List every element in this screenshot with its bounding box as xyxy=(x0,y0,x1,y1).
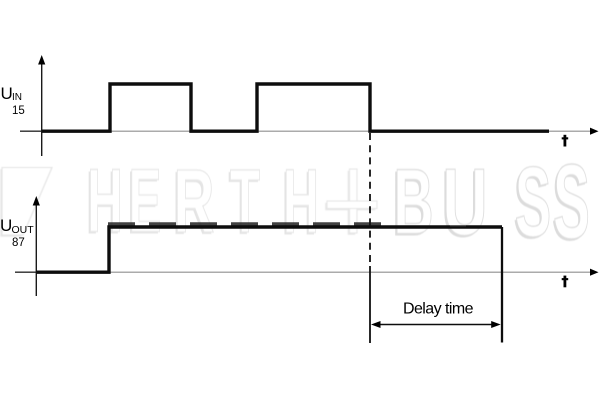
svg-text:T: T xyxy=(230,151,260,251)
svg-text:87: 87 xyxy=(12,237,25,249)
svg-text:S: S xyxy=(553,143,590,261)
svg-text:U: U xyxy=(1,84,13,103)
svg-text:OUT: OUT xyxy=(12,224,35,236)
svg-text:H: H xyxy=(87,151,123,251)
svg-text:IN: IN xyxy=(12,92,22,103)
svg-text:H: H xyxy=(283,151,319,253)
svg-text:B: B xyxy=(393,151,433,254)
svg-text:15: 15 xyxy=(12,105,25,117)
svg-text:U: U xyxy=(0,216,12,235)
svg-text:U: U xyxy=(442,150,487,256)
svg-text:Delay time: Delay time xyxy=(403,301,474,318)
svg-text:R: R xyxy=(174,151,215,252)
svg-text:E: E xyxy=(128,151,161,251)
svg-text:S: S xyxy=(515,147,551,257)
